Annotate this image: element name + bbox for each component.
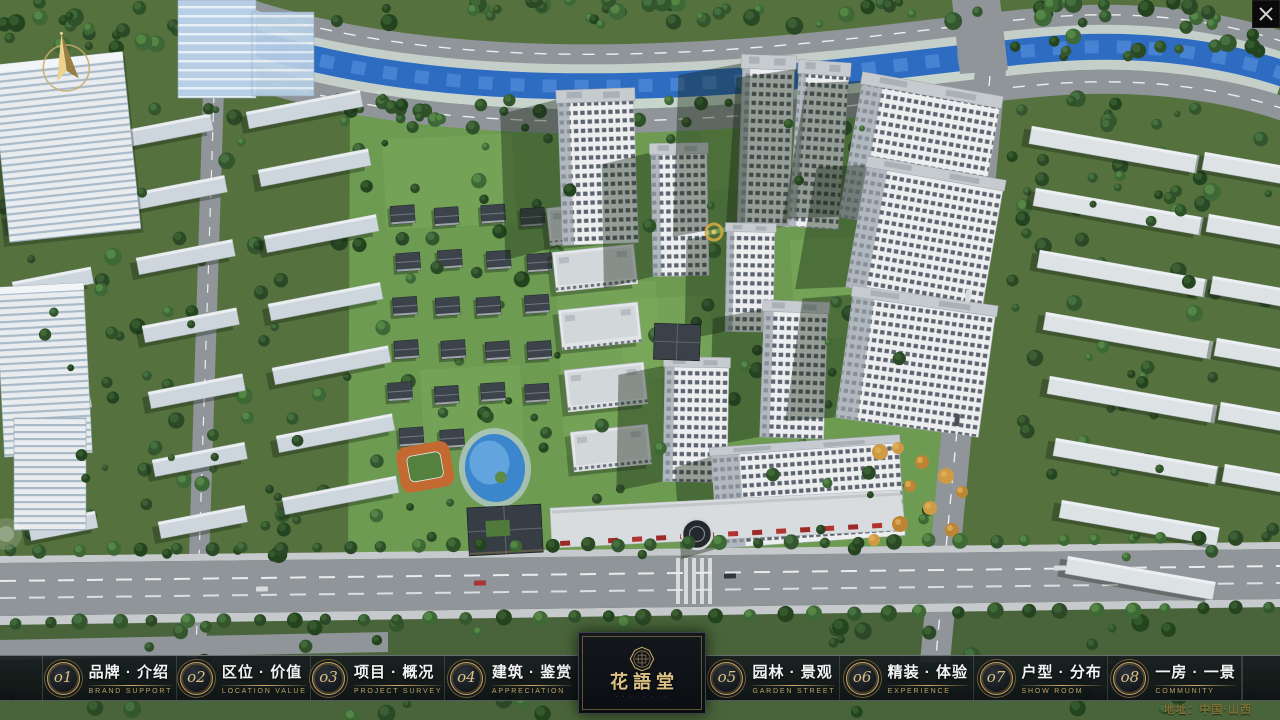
logo-seal-icon: [629, 646, 655, 672]
nav-item-label-cn: 园林 · 景观: [752, 661, 832, 682]
nav-item-project[interactable]: o3 项目 · 概况PROJECT SURVEY: [311, 656, 445, 700]
nav-item-label-en: COMMUNITY: [1155, 688, 1214, 695]
nav-item-number: o3: [319, 670, 338, 685]
nav-item-number: o5: [718, 670, 737, 685]
nav-item-rule: [888, 685, 968, 686]
navbar-left-pad: [0, 656, 43, 700]
masterplan-map[interactable]: [0, 0, 1280, 720]
nav-item-label-cn: 建筑 · 鉴赏: [492, 661, 572, 682]
sales-app-window: o1 品牌 · 介绍BRAND SUPPORT o2 区位 · 价值LOCATI…: [0, 0, 1280, 720]
nav-item-rule: [492, 685, 572, 686]
nav-item-architecture[interactable]: o4 建筑 · 鉴赏APPRECIATION: [445, 656, 579, 700]
nav-item-brand[interactable]: o1 品牌 · 介绍BRAND SUPPORT: [43, 656, 177, 700]
nav-item-label-cn: 区位 · 价值: [222, 661, 302, 682]
nav-item-number: o4: [457, 670, 476, 685]
nav-item-rule: [752, 685, 835, 686]
nav-item-label-en: LOCATION VALUE: [222, 688, 307, 695]
compass-icon: [34, 26, 98, 100]
nav-item-label-cn: 品牌 · 介绍: [89, 661, 169, 682]
close-button[interactable]: [1252, 0, 1280, 28]
nav-item-badge: o6: [846, 662, 879, 695]
project-logo-subtext: · · · · · · · ·: [615, 695, 668, 700]
nav-item-badge: o3: [312, 662, 345, 695]
nav-item-rule: [222, 685, 307, 686]
nav-item-rule: [1022, 685, 1102, 686]
nav-item-number: o6: [853, 670, 872, 685]
nav-item-number: o1: [54, 670, 73, 685]
nav-item-label-cn: 项目 · 概况: [354, 661, 434, 682]
nav-item-label-en: BRAND SUPPORT: [89, 688, 173, 695]
close-icon: [1258, 6, 1274, 22]
nav-item-number: o8: [1121, 670, 1140, 685]
nav-item-number: o2: [187, 670, 206, 685]
nav-item-badge: o1: [47, 662, 80, 695]
nav-item-label-en: PROJECT SURVEY: [354, 688, 442, 695]
nav-item-decoration[interactable]: o6 精装 · 体验EXPERIENCE: [840, 656, 974, 700]
project-logo-title: 花語堂: [605, 673, 679, 694]
nav-item-number: o7: [987, 670, 1006, 685]
nav-item-label-cn: 精装 · 体验: [888, 661, 968, 682]
nav-item-label-en: APPRECIATION: [492, 688, 565, 695]
nav-item-badge: o5: [710, 662, 743, 695]
nav-item-badge: o7: [980, 662, 1013, 695]
nav-item-badge: o2: [180, 662, 213, 695]
project-address: 地址：中国·山西: [1163, 701, 1252, 717]
nav-item-label-en: EXPERIENCE: [888, 688, 951, 695]
nav-item-location[interactable]: o2 区位 · 价值LOCATION VALUE: [177, 656, 311, 700]
nav-item-badge: o4: [450, 662, 483, 695]
nav-item-garden[interactable]: o5 园林 · 景观GARDEN STREET: [707, 656, 841, 700]
project-logo-panel[interactable]: 花語堂 · · · · · · · ·: [578, 632, 706, 714]
nav-item-floorplan[interactable]: o7 户型 · 分布SHOW ROOM: [974, 656, 1108, 700]
nav-item-rule: [354, 685, 442, 686]
nav-item-label-en: SHOW ROOM: [1022, 688, 1084, 695]
nav-item-badge: o8: [1113, 662, 1146, 695]
nav-item-community[interactable]: o8 一房 · 一景COMMUNITY: [1108, 656, 1242, 700]
nav-item-rule: [89, 685, 173, 686]
nav-item-rule: [1155, 685, 1235, 686]
nav-item-label-cn: 一房 · 一景: [1155, 661, 1235, 682]
navbar-right-pad: [1242, 656, 1280, 700]
nav-item-label-en: GARDEN STREET: [752, 688, 835, 695]
nav-item-label-cn: 户型 · 分布: [1022, 661, 1102, 682]
